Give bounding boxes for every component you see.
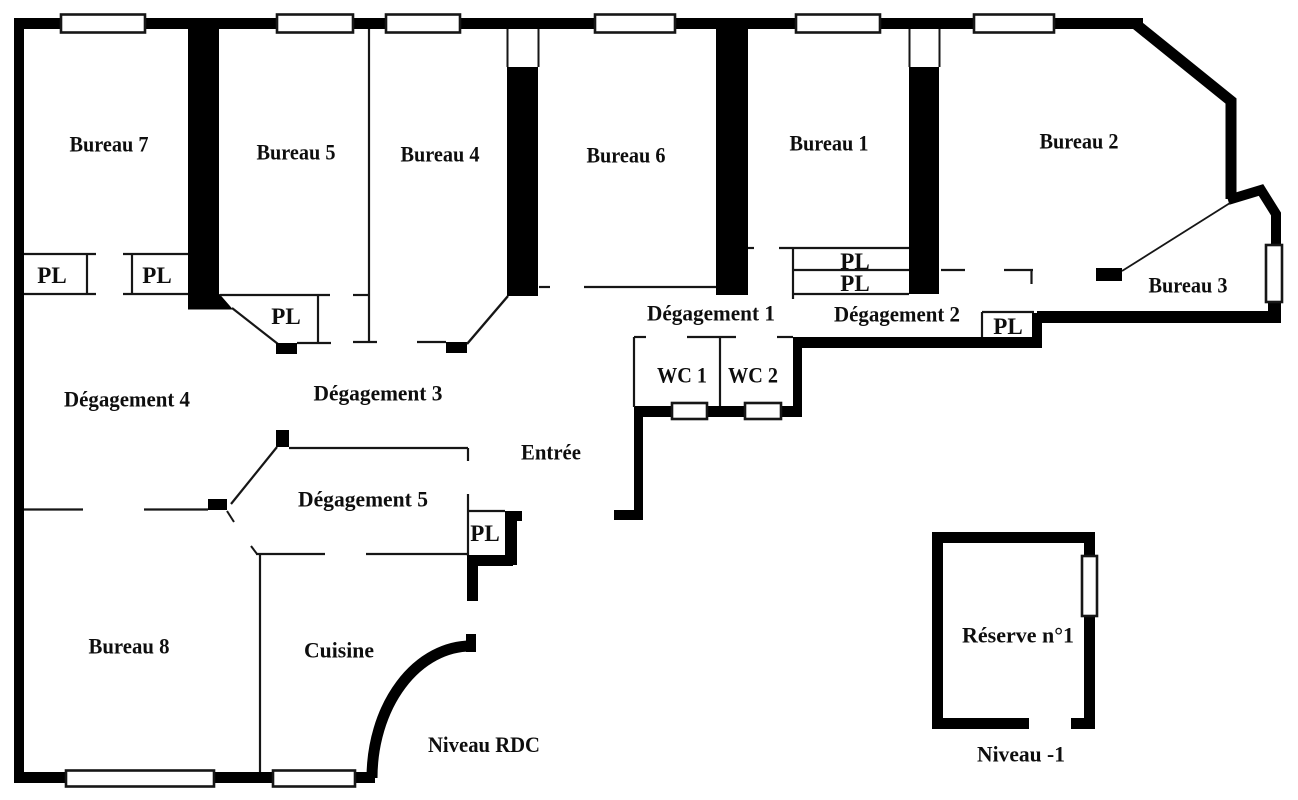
svg-text:Niveau -1: Niveau -1 [977,742,1065,767]
svg-text:Bureau 3: Bureau 3 [1149,273,1228,298]
svg-text:Cuisine: Cuisine [304,638,374,663]
svg-text:Bureau 1: Bureau 1 [790,131,869,156]
svg-text:PL: PL [470,521,499,546]
svg-text:Bureau 2: Bureau 2 [1040,129,1119,154]
svg-text:PL: PL [993,314,1022,339]
svg-text:PL: PL [37,263,66,288]
svg-text:Bureau 7: Bureau 7 [70,132,149,157]
svg-text:Réserve n°1: Réserve n°1 [962,623,1074,648]
svg-text:Bureau 6: Bureau 6 [587,143,666,168]
svg-text:PL: PL [271,304,300,329]
svg-text:WC 2: WC 2 [728,363,778,388]
svg-text:Entrée: Entrée [521,440,581,465]
svg-text:Bureau 5: Bureau 5 [257,140,336,165]
svg-text:Dégagement 2: Dégagement 2 [834,302,960,327]
svg-text:Dégagement 3: Dégagement 3 [314,381,443,406]
svg-text:WC 1: WC 1 [657,363,707,388]
svg-text:Dégagement 1: Dégagement 1 [647,301,775,326]
svg-text:Bureau 4: Bureau 4 [401,142,480,167]
svg-text:Niveau RDC: Niveau RDC [428,732,540,757]
svg-text:Bureau 8: Bureau 8 [89,634,170,659]
svg-text:Dégagement 5: Dégagement 5 [298,487,428,512]
svg-text:PL: PL [840,271,869,296]
svg-text:Dégagement 4: Dégagement 4 [64,387,190,412]
svg-text:PL: PL [142,263,171,288]
